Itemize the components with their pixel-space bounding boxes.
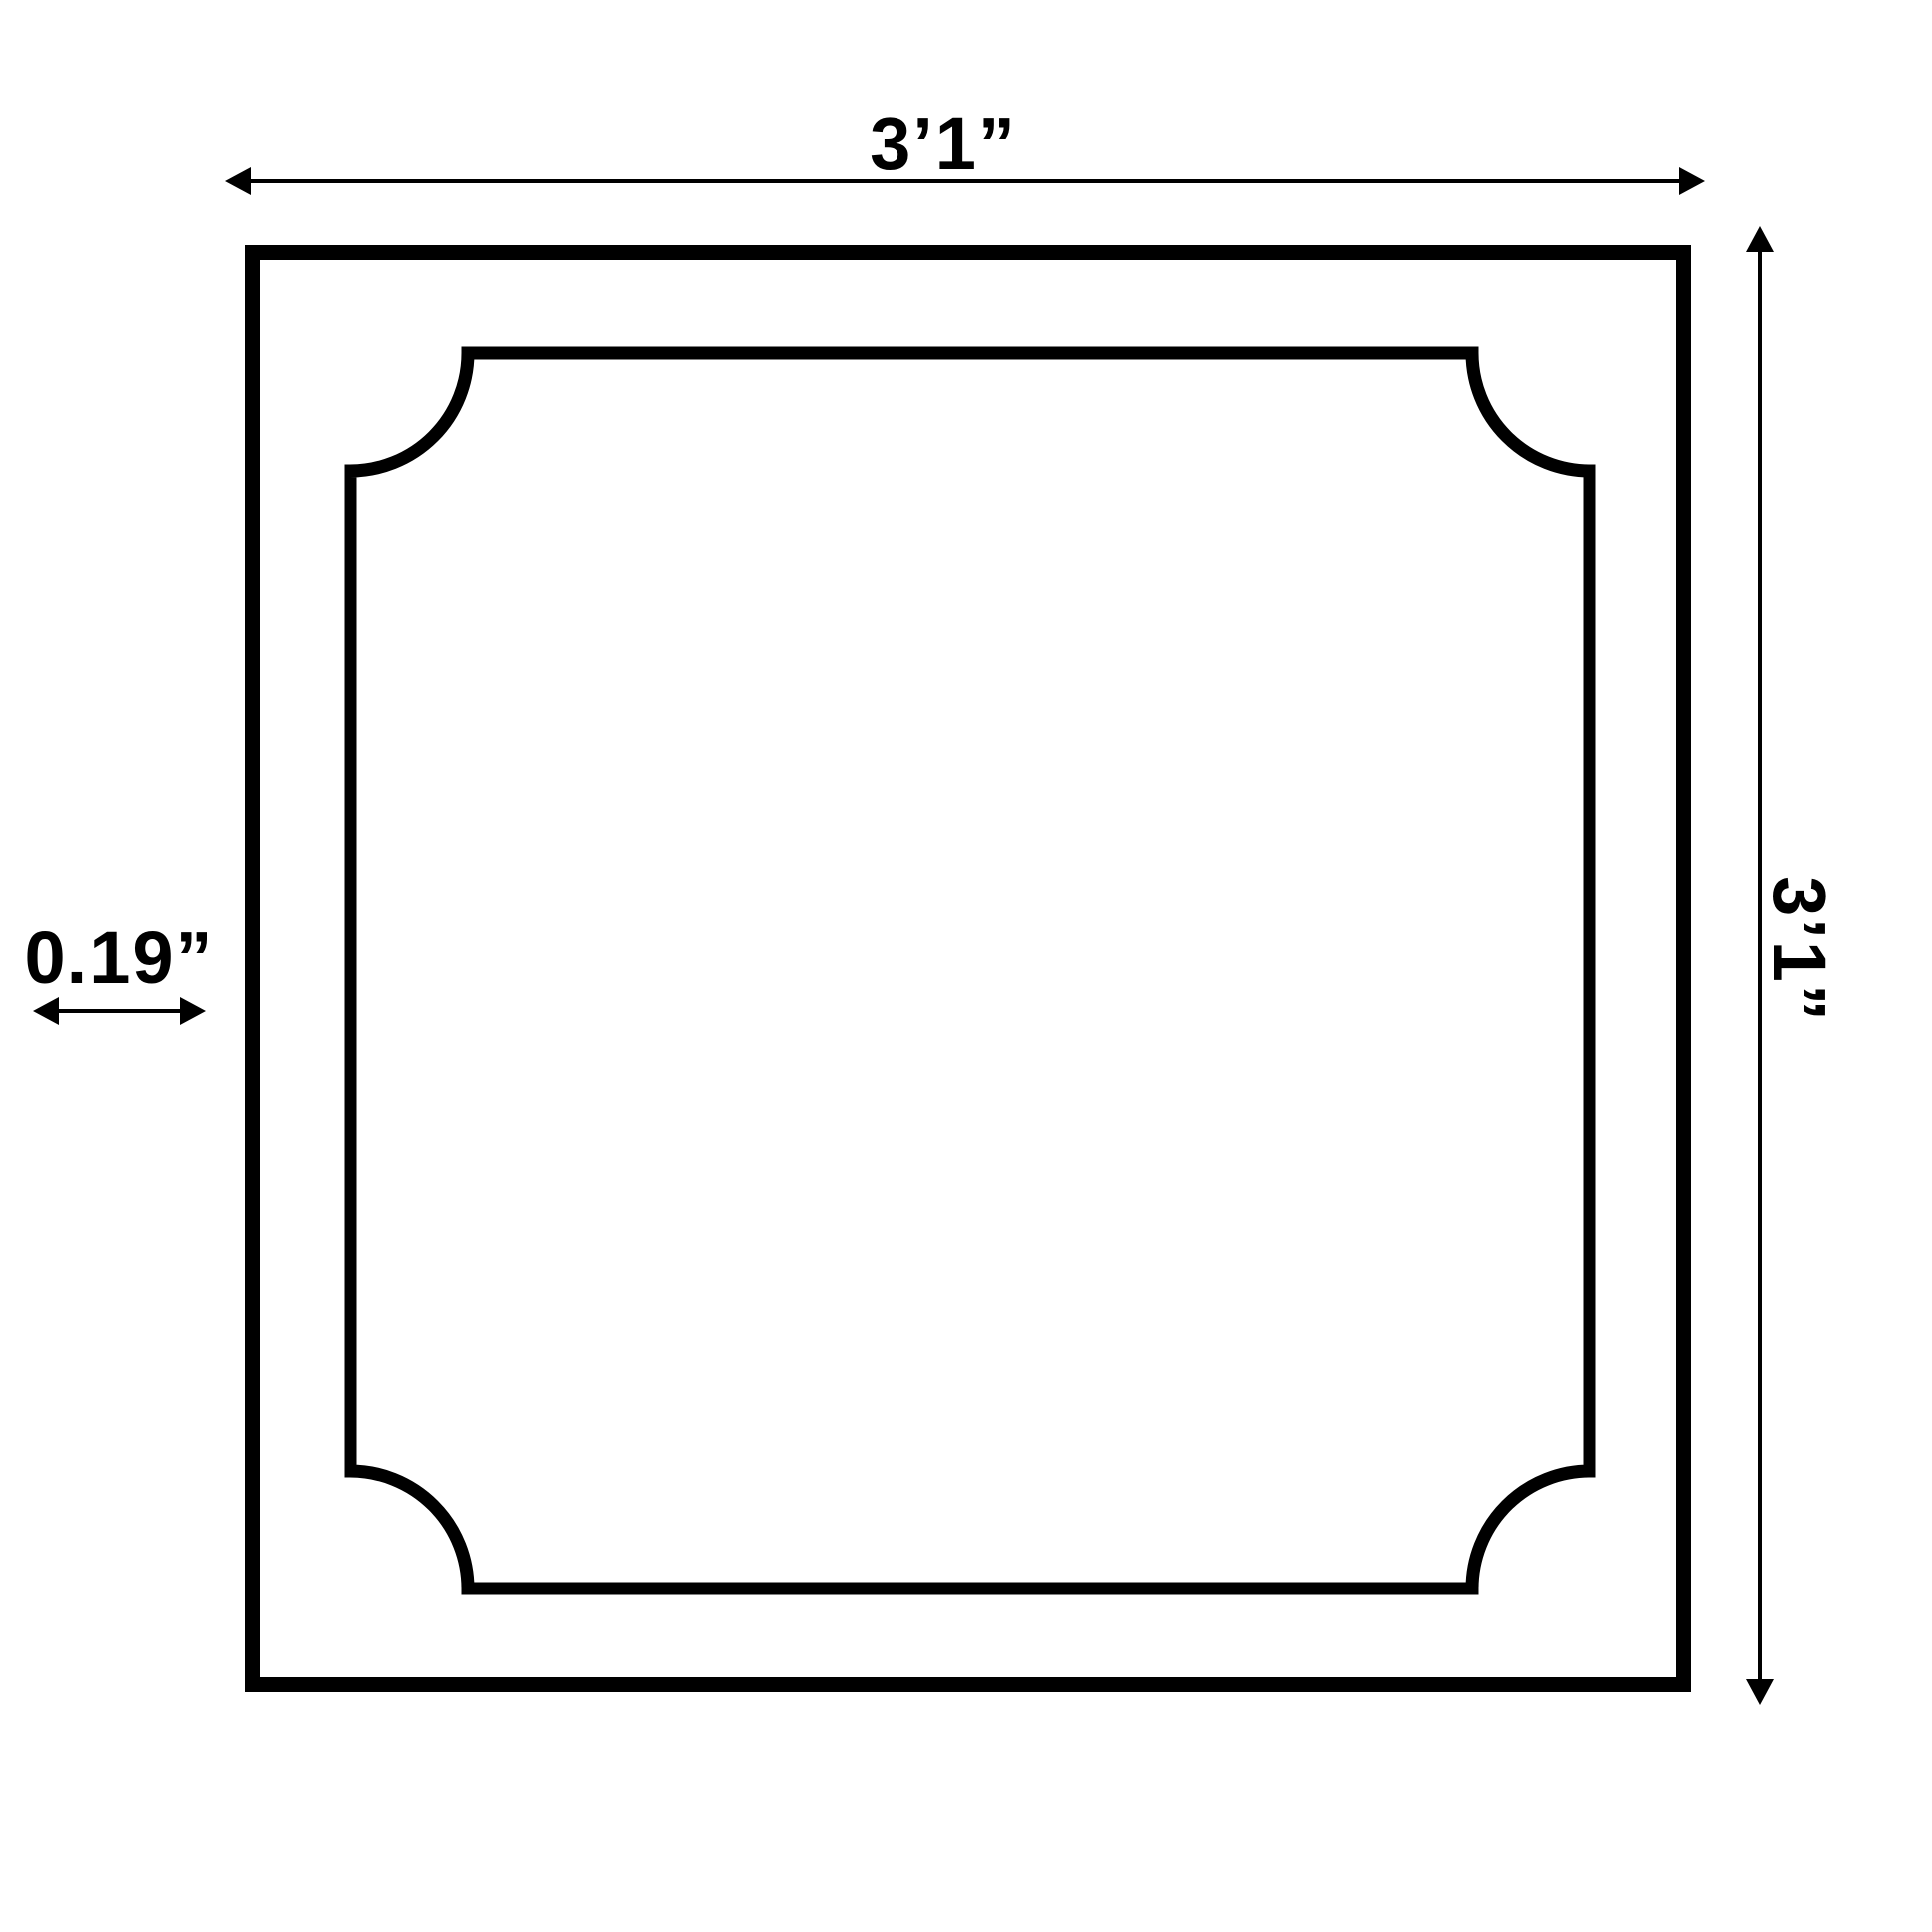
arrow-down-icon xyxy=(1746,1679,1774,1705)
arrow-left-icon xyxy=(33,997,59,1025)
inner-panel-outline xyxy=(350,353,1589,1588)
arrow-left-icon xyxy=(225,167,251,195)
arrow-right-icon xyxy=(180,997,206,1025)
thickness-dimension: 0.19” xyxy=(24,916,213,1025)
arrow-right-icon xyxy=(1679,167,1705,195)
panel-dimension-diagram: 3’1” 3’1” 0.19” xyxy=(0,0,1932,1932)
right-height-label: 3’1” xyxy=(1758,876,1841,1023)
right-height-dimension: 3’1” xyxy=(1746,226,1841,1705)
top-width-label: 3’1” xyxy=(870,102,1017,185)
diagram-canvas: 3’1” 3’1” 0.19” xyxy=(0,0,1932,1932)
arrow-up-icon xyxy=(1746,226,1774,252)
top-width-dimension: 3’1” xyxy=(225,102,1705,195)
outer-square-border xyxy=(253,253,1684,1685)
thickness-label: 0.19” xyxy=(24,916,213,999)
